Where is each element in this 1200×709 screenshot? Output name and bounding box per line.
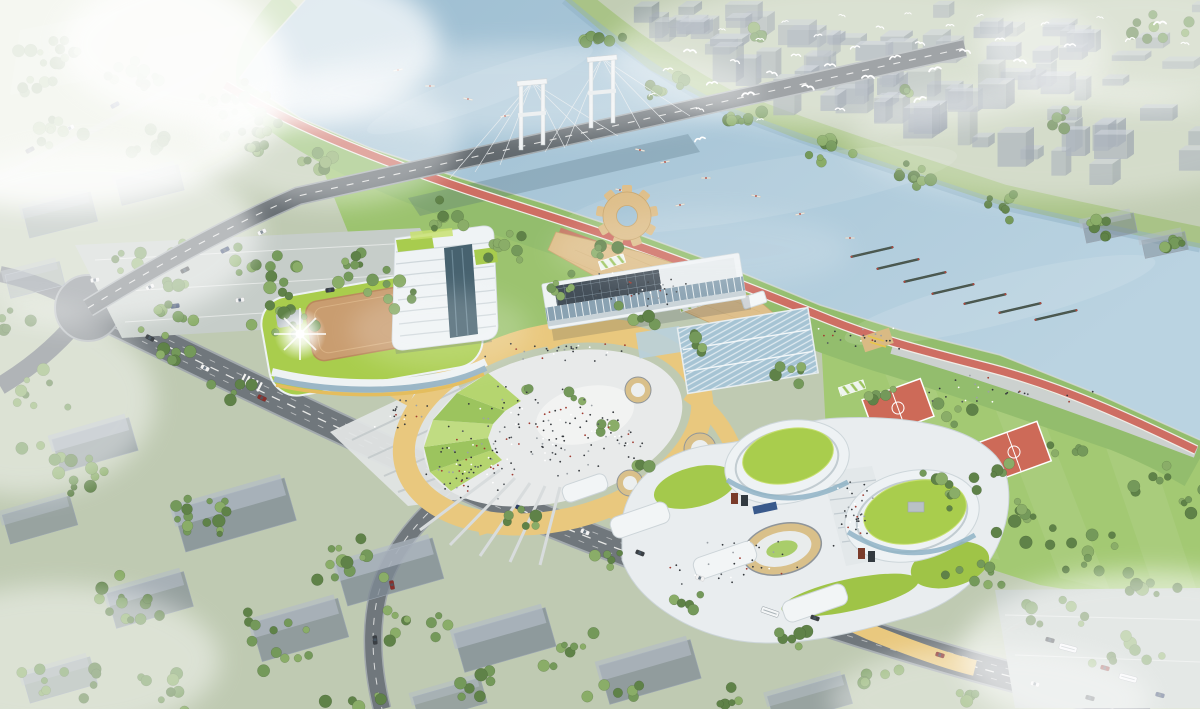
rower xyxy=(755,195,757,197)
tree xyxy=(356,248,367,259)
car-windshield xyxy=(113,296,116,300)
running-track-edge xyxy=(225,85,1196,450)
tree xyxy=(729,699,736,706)
ghost-building-side xyxy=(1030,68,1036,80)
ghost-building-side xyxy=(1005,21,1013,38)
front-street-lane-2 xyxy=(88,301,1150,702)
tree xyxy=(917,176,927,186)
helipad-deck xyxy=(860,328,893,352)
tree xyxy=(947,505,953,511)
person xyxy=(490,458,492,460)
person xyxy=(552,452,554,454)
rower xyxy=(619,189,621,191)
ghost-building-front xyxy=(1140,108,1172,121)
gen-birds xyxy=(649,13,1190,142)
ghost-building xyxy=(880,92,899,106)
person xyxy=(594,430,596,432)
car-windshield xyxy=(373,638,376,641)
tree xyxy=(121,597,127,603)
person xyxy=(733,563,735,565)
mall-billboard-1 xyxy=(731,493,738,504)
ghost-building-side xyxy=(966,84,973,110)
car xyxy=(200,364,210,372)
tree xyxy=(134,247,146,259)
person xyxy=(438,469,440,471)
person xyxy=(472,444,474,446)
ghost-building-front xyxy=(1094,135,1127,159)
tree xyxy=(499,239,510,250)
ghost-building-side xyxy=(942,29,950,53)
residential-slab xyxy=(18,187,97,239)
person xyxy=(722,544,724,546)
ghost-building xyxy=(933,1,954,18)
gen-cars xyxy=(25,69,1165,701)
ghost-building xyxy=(874,97,893,123)
ghost-building-roof xyxy=(725,1,763,5)
ghost-building-roof xyxy=(1179,145,1200,150)
tree xyxy=(912,182,921,191)
ghost-building-side xyxy=(1051,60,1057,87)
tree xyxy=(998,581,1006,589)
person xyxy=(532,453,534,455)
tree xyxy=(564,387,575,398)
tree xyxy=(443,620,454,631)
tree xyxy=(1124,637,1137,650)
tree xyxy=(743,116,752,125)
ghost-building-front xyxy=(978,64,998,84)
boat-hull xyxy=(795,212,805,216)
ghost-building-roof xyxy=(987,42,1022,46)
person xyxy=(977,386,979,388)
tree xyxy=(32,83,43,94)
person xyxy=(617,419,619,421)
person xyxy=(618,443,620,445)
tree xyxy=(67,490,74,497)
ghost-building-roof xyxy=(1043,18,1077,24)
person xyxy=(394,410,396,412)
person xyxy=(526,392,528,394)
ghost-building xyxy=(1020,145,1043,159)
bird xyxy=(1041,22,1049,26)
ghost-building-roof xyxy=(1059,44,1088,48)
person xyxy=(481,443,483,445)
person xyxy=(544,460,546,462)
person xyxy=(733,542,735,544)
person xyxy=(496,452,498,454)
tree xyxy=(104,72,113,81)
tree xyxy=(579,35,590,46)
tree xyxy=(140,72,147,79)
ghost-building-roof xyxy=(1062,117,1083,123)
person xyxy=(855,529,857,531)
person xyxy=(503,402,505,404)
person xyxy=(708,563,710,565)
person xyxy=(932,400,934,402)
tree xyxy=(643,460,655,472)
tree xyxy=(207,498,213,504)
ghost-building-roof xyxy=(1001,68,1036,72)
ghost-building-front xyxy=(1001,72,1031,80)
tree xyxy=(945,490,952,497)
tower-body xyxy=(392,226,498,350)
person xyxy=(542,438,544,440)
car-body xyxy=(145,283,155,291)
ghost-building-roof xyxy=(923,29,951,35)
tree xyxy=(1128,480,1140,492)
tree xyxy=(595,244,602,251)
tree xyxy=(727,112,735,120)
car xyxy=(1045,637,1055,644)
shell-hull xyxy=(931,283,974,295)
ghost-building-front xyxy=(923,35,943,53)
tree xyxy=(530,510,542,522)
tree xyxy=(690,329,699,338)
ghost-building-side xyxy=(868,72,874,95)
residential-slab xyxy=(18,652,97,704)
court-b xyxy=(977,421,1052,482)
tree xyxy=(561,642,567,648)
person xyxy=(374,426,376,428)
person xyxy=(397,427,399,429)
person xyxy=(630,431,632,433)
ghost-building-side xyxy=(1127,130,1134,159)
person xyxy=(542,357,544,359)
tree xyxy=(896,168,903,175)
tree xyxy=(429,220,438,229)
person xyxy=(1019,391,1021,393)
tree xyxy=(1142,655,1152,665)
person xyxy=(855,506,857,508)
parking-aisle-1 xyxy=(95,242,430,260)
boat-hull xyxy=(845,237,855,239)
ghost-building-front xyxy=(1089,164,1112,185)
tree xyxy=(374,693,380,699)
ring-tendril-north xyxy=(545,328,628,342)
car xyxy=(90,277,100,283)
ghost-building-side xyxy=(756,54,762,86)
tree xyxy=(88,663,101,676)
car-body xyxy=(1085,695,1095,702)
tree xyxy=(550,662,558,670)
ghost-building-front xyxy=(906,72,934,97)
rower xyxy=(664,161,666,163)
tree xyxy=(908,171,920,183)
person xyxy=(535,399,537,401)
car-body xyxy=(145,334,155,342)
person xyxy=(444,488,446,490)
person xyxy=(499,431,501,433)
field-stripe-2 xyxy=(120,25,240,105)
ghost-building-roof xyxy=(827,31,845,35)
rower xyxy=(397,69,399,71)
tree xyxy=(969,473,979,483)
boat-hull xyxy=(615,188,625,192)
tree xyxy=(904,87,910,93)
person xyxy=(605,436,607,438)
mist-patch xyxy=(960,570,1200,709)
ghost-building-front xyxy=(1047,109,1077,120)
tree xyxy=(247,636,257,646)
sports-courts xyxy=(862,379,1051,483)
person xyxy=(685,283,687,285)
tree xyxy=(279,278,288,287)
person xyxy=(610,432,612,434)
bridge-road-border xyxy=(88,48,965,308)
ghost-building xyxy=(923,29,951,53)
boat-hull xyxy=(425,85,435,87)
car-windshield xyxy=(1033,682,1036,686)
bird xyxy=(756,38,764,40)
tree xyxy=(797,362,807,372)
tree xyxy=(319,695,332,708)
person xyxy=(758,547,760,549)
ghost-building-side xyxy=(837,89,846,111)
tree xyxy=(34,664,45,675)
ghost-building-side xyxy=(941,110,947,133)
levee-road xyxy=(0,60,228,178)
ground xyxy=(0,0,1200,709)
ghost-building-side xyxy=(1017,22,1025,37)
person xyxy=(497,464,499,466)
mall-gate-canopy-3 xyxy=(780,582,850,624)
ghost-building-side xyxy=(758,1,763,21)
car-body xyxy=(235,297,245,303)
tree xyxy=(607,563,614,570)
tree xyxy=(156,350,165,359)
tree xyxy=(331,574,339,582)
tree xyxy=(61,54,69,62)
ghost-building-front xyxy=(1102,79,1122,86)
tree xyxy=(722,114,735,127)
person xyxy=(470,469,472,471)
viewing-platform xyxy=(741,291,768,310)
slab-body xyxy=(116,165,184,206)
person xyxy=(492,482,494,484)
boat-hull xyxy=(701,177,711,179)
tree xyxy=(987,195,993,201)
ghost-building xyxy=(1162,56,1200,68)
person xyxy=(880,335,882,337)
tree xyxy=(118,594,124,600)
person xyxy=(748,541,750,543)
tree xyxy=(48,77,58,87)
lawn-wedge-2 xyxy=(424,438,492,472)
tree xyxy=(474,691,485,702)
small-boat xyxy=(463,97,473,101)
tree xyxy=(127,616,134,623)
ghost-building-side xyxy=(888,41,894,61)
tree xyxy=(484,665,495,676)
person xyxy=(399,399,401,401)
person xyxy=(583,399,585,401)
tree xyxy=(568,284,575,291)
tree xyxy=(152,73,159,80)
tree xyxy=(1066,601,1077,612)
shell-hull xyxy=(850,246,893,258)
ghost-building-roof xyxy=(978,59,1006,64)
ghost-building xyxy=(1043,18,1077,30)
person xyxy=(612,272,614,274)
slab-body xyxy=(599,640,701,705)
podium-green-roof xyxy=(257,264,487,400)
ghost-building-front xyxy=(1093,125,1108,151)
lawn-mow-stripe-2 xyxy=(990,395,1110,590)
person xyxy=(543,430,545,432)
tree xyxy=(1086,219,1093,226)
ghost-building-front xyxy=(668,20,682,28)
tree xyxy=(697,591,704,598)
person xyxy=(675,564,677,566)
tree xyxy=(1021,599,1032,610)
tree xyxy=(290,322,297,329)
tree xyxy=(1061,106,1069,114)
person xyxy=(468,403,470,405)
ghost-building-side xyxy=(1112,158,1121,185)
person xyxy=(849,521,851,523)
tree xyxy=(971,690,979,698)
car xyxy=(1085,695,1095,702)
ghost-building xyxy=(820,89,846,111)
tree xyxy=(475,668,488,681)
tree xyxy=(438,211,449,222)
tree xyxy=(392,612,399,619)
tree xyxy=(166,247,178,259)
ghost-building xyxy=(879,70,903,85)
ghost-building xyxy=(677,18,713,34)
tree xyxy=(292,262,303,273)
tree xyxy=(880,390,891,401)
tree xyxy=(670,596,679,605)
gen-boats xyxy=(393,68,1078,321)
person xyxy=(555,438,557,440)
esplanade-steps xyxy=(352,384,510,492)
ghost-building-side xyxy=(1026,127,1034,167)
ghost-building-side xyxy=(864,76,869,104)
bus-stripe xyxy=(763,610,776,615)
person xyxy=(657,297,659,299)
gear-ring xyxy=(603,192,651,240)
bus-body xyxy=(1119,673,1138,683)
car-body xyxy=(372,635,377,644)
ghost-building-roof xyxy=(972,133,994,138)
near-bank-edge xyxy=(240,0,1200,440)
ghost-building-front xyxy=(882,65,894,87)
person xyxy=(610,298,612,300)
tree xyxy=(303,626,310,633)
slab-body xyxy=(767,675,852,709)
person xyxy=(570,346,572,348)
tree xyxy=(905,89,914,98)
car xyxy=(145,283,155,291)
ghost-building-side xyxy=(1108,119,1117,151)
tree xyxy=(407,294,416,303)
ghost-building-front xyxy=(974,27,1005,38)
ghost-building-side xyxy=(958,81,963,104)
person xyxy=(453,450,455,452)
car-body xyxy=(755,89,765,95)
tree xyxy=(351,251,361,261)
branch-road-centerline xyxy=(373,484,462,709)
tree xyxy=(991,472,997,478)
tree xyxy=(1161,242,1172,253)
tree xyxy=(517,231,527,241)
tree xyxy=(313,163,326,176)
tree xyxy=(1076,444,1083,451)
tree xyxy=(250,141,261,152)
shell-stern xyxy=(944,271,946,273)
tree xyxy=(37,363,50,376)
tree xyxy=(37,137,46,146)
tree xyxy=(379,572,389,582)
tree xyxy=(280,654,289,663)
tree xyxy=(157,309,165,317)
person xyxy=(614,436,616,438)
ghost-building-side xyxy=(1069,18,1078,30)
ghost-building-roof xyxy=(1033,45,1059,50)
tree xyxy=(184,512,193,521)
tree xyxy=(627,685,638,696)
person xyxy=(458,464,460,466)
ghost-building-side xyxy=(828,73,836,90)
tree xyxy=(720,699,731,709)
tree xyxy=(254,117,263,126)
tree xyxy=(253,144,261,152)
person xyxy=(558,347,560,349)
front-street-border xyxy=(88,308,1150,709)
slab-pv-roof xyxy=(554,270,662,306)
tree xyxy=(50,57,62,69)
tree xyxy=(221,498,228,505)
person xyxy=(863,335,865,337)
person xyxy=(869,530,871,532)
tree xyxy=(827,137,837,147)
base-terrain xyxy=(0,0,1200,709)
person xyxy=(504,426,506,428)
ghost-building-roof xyxy=(882,61,899,65)
ghost-building-front xyxy=(804,56,823,79)
tree xyxy=(1179,498,1185,504)
tree xyxy=(173,686,185,698)
tree xyxy=(85,455,93,463)
tree xyxy=(239,91,251,103)
tree xyxy=(154,610,164,620)
ghost-building-front xyxy=(948,91,978,111)
bird xyxy=(1014,59,1026,64)
rowing-shell-moored xyxy=(963,293,1006,305)
tree xyxy=(1169,237,1181,249)
tree xyxy=(320,156,332,168)
tree xyxy=(20,87,30,97)
person xyxy=(818,328,820,330)
ghost-building-roof xyxy=(820,89,846,95)
ghost-building-roof xyxy=(778,19,817,25)
ghost-building xyxy=(906,67,941,97)
car-windshield xyxy=(238,298,241,302)
person xyxy=(493,468,495,470)
ghost-building-front xyxy=(1004,28,1017,37)
ghost-building-front xyxy=(829,38,861,45)
tree xyxy=(826,141,837,152)
ghost-building-roof xyxy=(835,76,870,80)
ghost-building-side xyxy=(1069,22,1075,36)
slab-body xyxy=(454,608,556,673)
person xyxy=(666,303,668,305)
tree xyxy=(410,289,417,296)
tree xyxy=(1162,461,1171,470)
car xyxy=(235,297,245,303)
roads xyxy=(0,60,1196,709)
shell-hull xyxy=(1034,309,1077,321)
